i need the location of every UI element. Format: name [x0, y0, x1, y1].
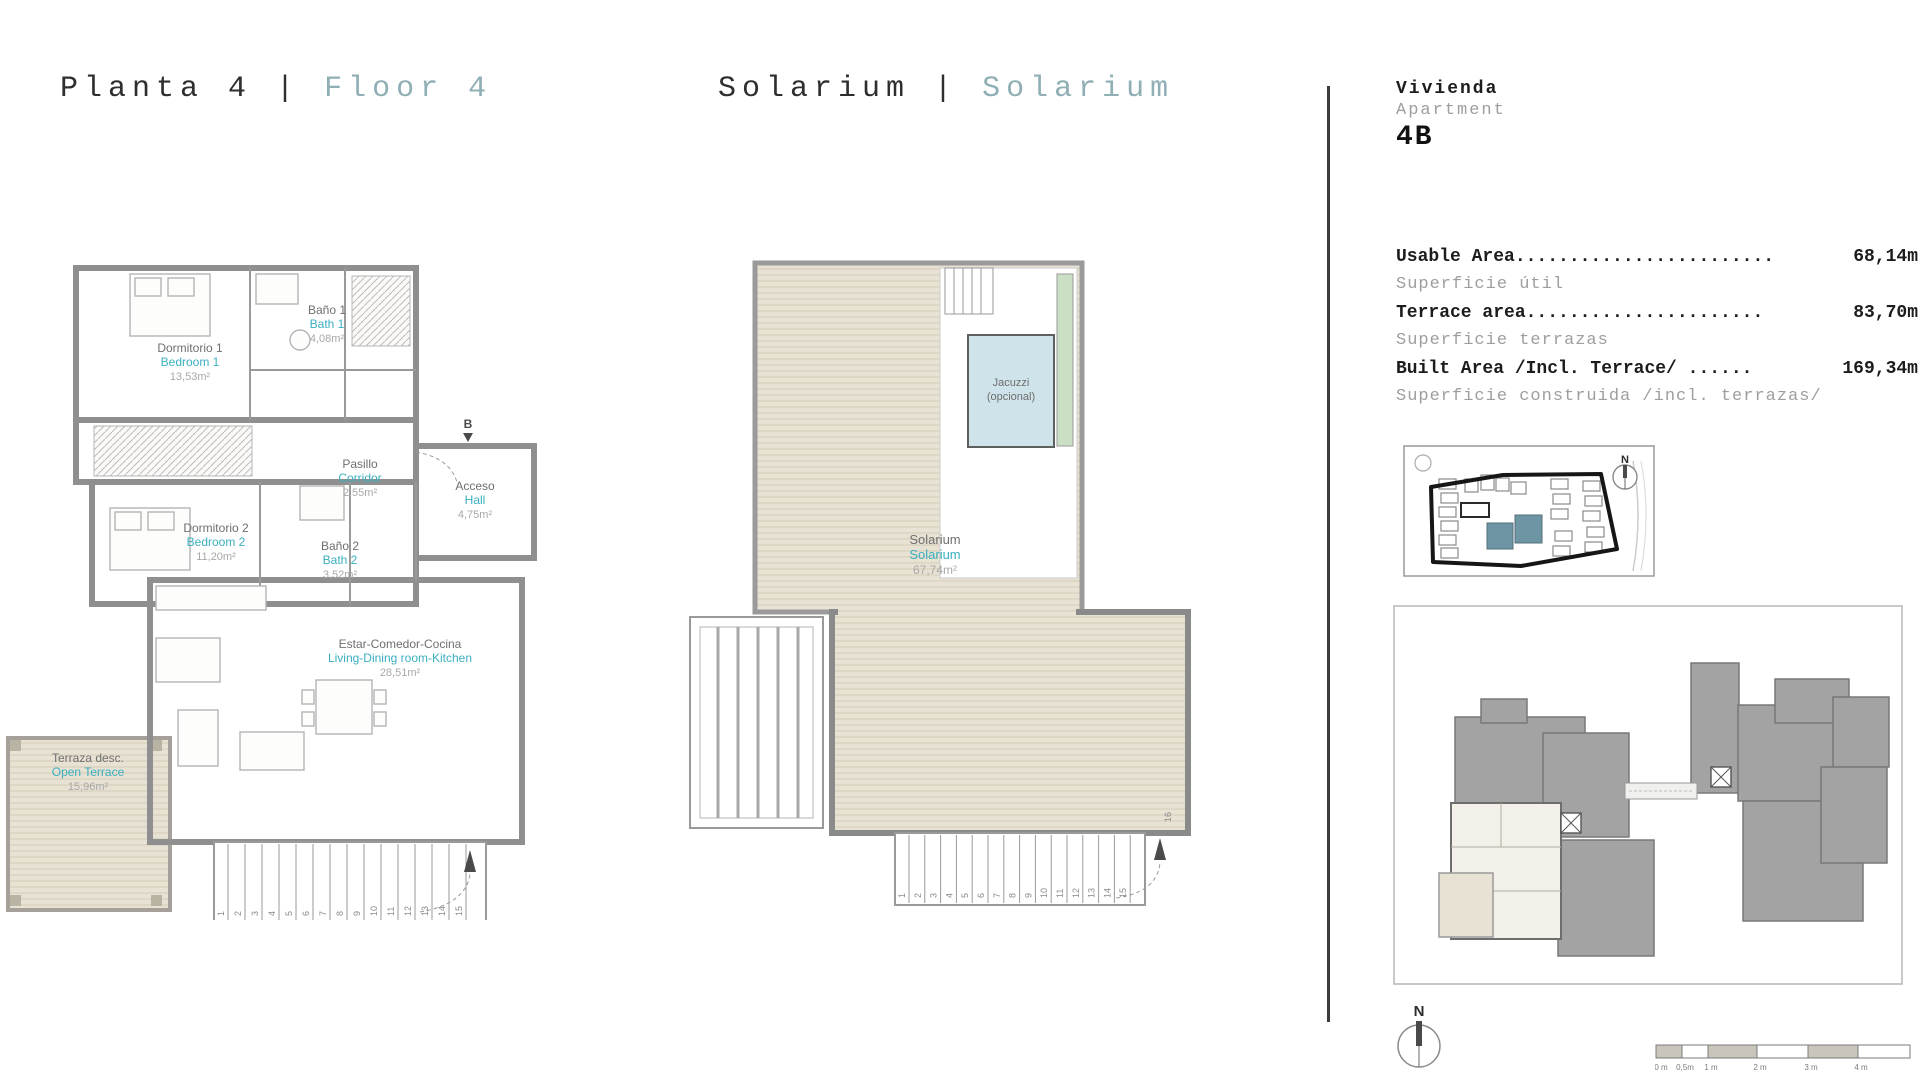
svg-text:N: N [1414, 1003, 1425, 1020]
hall-label-es: Acceso [455, 479, 495, 493]
built-area-value: 169,34m [1842, 355, 1918, 383]
svg-text:7: 7 [318, 911, 328, 916]
solarium-last-step: 16 [1163, 812, 1173, 822]
floorplan-solarium: Jacuzzi (opcional) 123456789101112131415… [620, 250, 1220, 920]
bedroom1-label-en: Bedroom 1 [161, 355, 220, 369]
terrace-label-en: Open Terrace [52, 765, 125, 779]
hall-label-en: Hall [465, 493, 486, 507]
terrace-area-value: 83,70m [1853, 299, 1918, 327]
jacuzzi: Jacuzzi (opcional) [968, 335, 1054, 447]
bedroom2-label-es: Dormitorio 2 [183, 521, 249, 535]
built-area-row: Built Area /Incl. Terrace/ ...... 169,34… [1396, 355, 1918, 383]
title-floor-en: Floor 4 [324, 72, 492, 106]
bath2-label-en: Bath 2 [323, 553, 358, 567]
svg-text:11: 11 [386, 907, 396, 916]
terrace-area-label: Terrace area...................... [1396, 299, 1763, 327]
svg-text:2: 2 [913, 893, 923, 898]
terrace-area-label: 15,96m² [68, 781, 109, 793]
svg-text:8: 8 [1008, 893, 1018, 898]
solarium-label-es: Solarium [909, 532, 960, 547]
scale-label-0: 0 m [1655, 1063, 1668, 1072]
title-separator-2: | [934, 72, 958, 106]
title-separator: | [276, 72, 300, 106]
terrace-area-sub: Superficie terrazas [1396, 327, 1918, 355]
site-location-map: N [1403, 445, 1655, 577]
elevator-icon-2 [1711, 767, 1731, 787]
planter-strip [1057, 274, 1073, 446]
svg-text:4: 4 [944, 893, 954, 898]
bath1-label-es: Baño 1 [308, 303, 346, 317]
solarium-lower-deck [832, 612, 1188, 833]
jacuzzi-label-2: (opcional) [987, 391, 1035, 403]
svg-text:2: 2 [233, 911, 243, 916]
svg-text:1: 1 [216, 911, 226, 916]
svg-text:6: 6 [976, 893, 986, 898]
bath1-label-en: Bath 1 [310, 317, 345, 331]
svg-text:12: 12 [403, 906, 413, 916]
page-title-floor: Planta 4 | Floor 4 [60, 72, 492, 106]
corridor-label-es: Pasillo [342, 457, 378, 471]
bedroom2-area: 11,20m² [196, 551, 236, 563]
floor-overview-plan [1393, 605, 1903, 985]
title-solarium-es: Solarium [718, 72, 910, 106]
built-area-label: Built Area /Incl. Terrace/ ...... [1396, 355, 1752, 383]
svg-text:9: 9 [352, 911, 362, 916]
roof-stair-hatch [945, 268, 993, 314]
usable-area-sub: Superficie útil [1396, 271, 1918, 299]
corridor-label-en: Corridor [338, 471, 381, 485]
svg-text:13: 13 [420, 906, 430, 916]
north-compass-icon: N [1385, 988, 1455, 1080]
svg-text:6: 6 [301, 911, 311, 916]
floorplan-planta4: 123456789101112131415 B Dormitorio 1 Bed… [0, 250, 560, 920]
usable-area-value: 68,14m [1853, 243, 1918, 271]
jacuzzi-label-1: Jacuzzi [993, 377, 1030, 389]
usable-area-label: Usable Area........................ [1396, 243, 1774, 271]
svg-text:3: 3 [250, 911, 260, 916]
scale-bar-segments [1656, 1045, 1910, 1058]
scale-label-4: 4 m [1854, 1063, 1868, 1072]
solarium-stairs-arrow [1154, 838, 1166, 860]
section-marker-arrow-icon [463, 433, 473, 442]
svg-text:15: 15 [454, 906, 464, 916]
title-solarium-en: Solarium [982, 72, 1174, 106]
overview-unit-4b [1439, 803, 1561, 939]
living-label-es: Estar-Comedor-Cocina [339, 637, 462, 651]
scale-bar: 0 m 0,5m 1 m 2 m 3 m 4 m [1655, 1040, 1913, 1078]
svg-text:14: 14 [1102, 888, 1112, 898]
svg-text:9: 9 [1023, 893, 1033, 898]
apartment-unit: 4B [1396, 122, 1506, 154]
bedroom2-label-en: Bedroom 2 [187, 535, 246, 549]
svg-text:4: 4 [267, 911, 277, 916]
plan-sheet: Planta 4 | Floor 4 Solarium | Solarium V… [0, 0, 1920, 1080]
corridor-area: 2,55m² [343, 487, 378, 499]
built-area-sub: Superficie construida /incl. terrazas/ [1396, 383, 1918, 411]
bedroom1-area: 13,53m² [170, 371, 211, 383]
section-marker-label: B [464, 417, 473, 431]
svg-text:13: 13 [1087, 888, 1097, 898]
title-planta: Planta 4 [60, 72, 252, 106]
svg-text:10: 10 [369, 906, 379, 916]
bedroom1-label-es: Dormitorio 1 [157, 341, 223, 355]
exterior-stairs: 123456789101112131415 [214, 842, 486, 920]
usable-area-row: Usable Area........................ 68,1… [1396, 243, 1918, 271]
elevator-icon [1561, 813, 1581, 833]
pergola [690, 617, 823, 828]
site-building-outlined [1461, 503, 1489, 517]
svg-text:12: 12 [1071, 888, 1081, 898]
hall-area: 4,75m² [458, 509, 493, 521]
svg-text:7: 7 [992, 893, 1002, 898]
bath2-area: 3,52m² [323, 569, 358, 581]
section-marker: B [463, 417, 473, 442]
bath2-label-es: Baño 2 [321, 539, 359, 553]
svg-text:3: 3 [929, 893, 939, 898]
panel-divider [1327, 86, 1330, 1022]
scale-label-2: 2 m [1753, 1063, 1767, 1072]
scale-label-05: 0,5m [1676, 1063, 1694, 1072]
living-label-en: Living-Dining room-Kitchen [328, 651, 472, 665]
areas-block: Usable Area........................ 68,1… [1396, 243, 1918, 411]
svg-text:10: 10 [1039, 888, 1049, 898]
scale-label-1: 1 m [1704, 1063, 1718, 1072]
svg-text:14: 14 [437, 906, 447, 916]
svg-text:1: 1 [897, 893, 907, 898]
svg-text:5: 5 [960, 893, 970, 898]
svg-text:N: N [1621, 454, 1629, 466]
bath1-area: 4,08m² [310, 333, 345, 345]
terrace-area-row: Terrace area...................... 83,70… [1396, 299, 1918, 327]
page-title-solarium: Solarium | Solarium [718, 72, 1174, 106]
svg-text:11: 11 [1055, 889, 1065, 898]
apartment-id-block: Vivienda Apartment 4B [1396, 78, 1506, 154]
apartment-label-es: Vivienda [1396, 78, 1506, 100]
svg-text:5: 5 [284, 911, 294, 916]
solarium-label-en: Solarium [909, 547, 960, 562]
terrace-label-es: Terraza desc. [52, 751, 124, 765]
solarium-area: 67,74m² [913, 563, 957, 577]
scale-label-3: 3 m [1804, 1063, 1818, 1072]
apartment-label-en: Apartment [1396, 100, 1506, 122]
living-area: 28,51m² [380, 667, 421, 679]
svg-text:8: 8 [335, 911, 345, 916]
